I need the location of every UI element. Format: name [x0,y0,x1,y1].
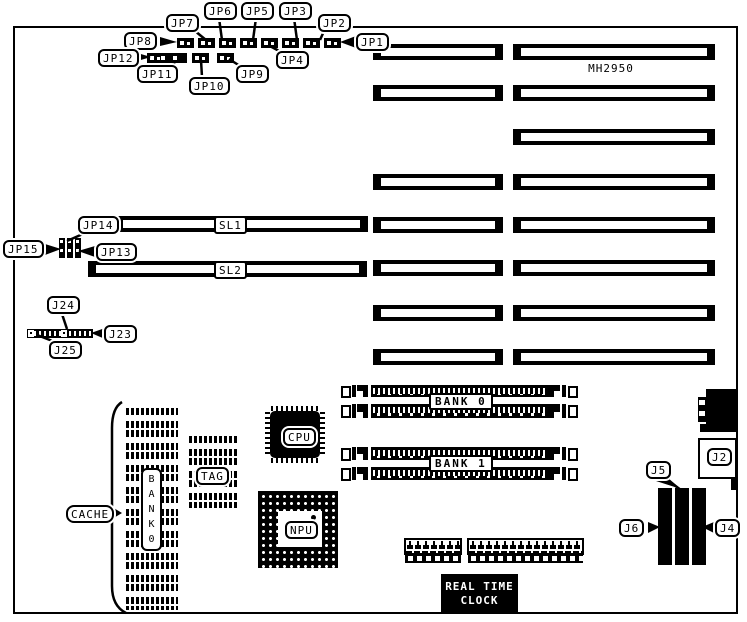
simm-latch [568,386,578,398]
expansion-slot [373,349,503,365]
jumper-block [217,53,234,63]
simm-latch [549,447,560,460]
header-connector [467,538,584,555]
jumper-label-jp6: JP6 [204,2,237,20]
jumper-label-jp14: JP14 [78,216,119,234]
simm-latch [357,385,368,397]
jumper-block [240,38,257,48]
rtc-label-line1: REAL TIME [441,580,518,594]
simm-latch [568,405,578,418]
expansion-slot [513,260,715,276]
jumper-label-jp5: JP5 [241,2,274,20]
keyboard-connector [700,424,707,432]
expansion-slot [513,349,715,365]
jumper-label-jp7: JP7 [166,14,199,32]
keyboard-connector [706,389,738,432]
pin-header-column [675,488,689,565]
jumper-label-jp15: JP15 [3,240,44,258]
expansion-slot [513,129,715,145]
pin-header-column [658,488,672,565]
connector-key-pin [28,330,34,337]
expansion-slot [513,44,715,60]
cache-label: CACHE [66,505,114,523]
board-model-text: MH2950 [583,62,639,75]
simm-latch [549,404,560,418]
cache-bank0-vertical-label: BANK0 [141,468,162,551]
slot-label-sl2: SL2 [214,261,247,279]
jumper-block [282,38,299,48]
expansion-slot [513,217,715,233]
bank0-label: BANK 0 [429,393,493,410]
jumper-block [67,238,73,258]
jumper-label-jp9: JP9 [236,65,269,83]
simm-latch [357,467,368,480]
expansion-slot [373,174,503,190]
expansion-slot [373,217,503,233]
simm-latch [341,405,351,418]
jumper-block [198,38,215,48]
keyboard-connector-notch [699,400,705,405]
connector-label-j6: J6 [619,519,644,537]
connector-label-j2: J2 [707,448,732,466]
jumper-block [192,53,209,63]
simm-latch [568,468,578,481]
simm-latch [341,468,351,481]
simm-latch [357,447,368,460]
jumper-label-jp12: JP12 [98,49,139,67]
expansion-slot [373,260,503,276]
npu-pin1-dot [311,515,316,520]
jumper-block [177,38,194,48]
header-connector [468,554,583,563]
jumper-block [324,38,341,48]
expansion-slot [513,85,715,101]
simm-latch [562,385,566,397]
rtc-label-line2: CLOCK [441,594,518,608]
npu-label: NPU [285,521,318,539]
jumper-label-jp10: JP10 [189,77,230,95]
connector-label-j5: J5 [646,461,671,479]
connector-label-j25: J25 [49,341,82,359]
connector-strip-j23 [27,329,93,338]
jumper-label-jp3: JP3 [279,2,312,20]
jumper-block [261,38,278,48]
jumper-block [59,238,65,258]
jumper-label-jp13: JP13 [96,243,137,261]
bank1-label: BANK 1 [429,455,493,472]
expansion-slot [513,305,715,321]
simm-latch [549,385,560,397]
simm-latch [568,448,578,461]
tag-chip-label: TAG [196,467,229,485]
header-connector [405,554,461,563]
real-time-clock-chip: REAL TIME CLOCK [441,574,518,614]
motherboard-diagram: MH2950 SL1 SL2 BANK0 TAG CACHE CPU NPU [0,0,747,622]
connector-label-j4: J4 [715,519,740,537]
pin-header-column [692,488,706,565]
jumper-label-jp1: JP1 [356,33,389,51]
jumper-label-jp11: JP11 [137,65,178,83]
simm-latch [341,448,351,461]
header-connector [404,538,462,555]
jumper-block [75,238,81,258]
simm-latch [341,386,351,398]
expansion-slot [373,85,503,101]
jumper-block [219,38,236,48]
simm-latch [357,404,368,418]
connector-label-j23: J23 [104,325,137,343]
expansion-slot [373,44,503,60]
simm-latch [352,404,356,418]
expansion-slot [373,305,503,321]
simm-latch [549,467,560,480]
keyboard-connector-notch [699,411,705,416]
simm-latch [352,385,356,397]
simm-latch [352,467,356,480]
jumper-label-jp4: JP4 [276,51,309,69]
jumper-label-jp2: JP2 [318,14,351,32]
connector-key-pin [61,330,67,337]
simm-latch [562,447,566,460]
connector-label-j24: J24 [47,296,80,314]
simm-latch [562,467,566,480]
jumper-label-jp8: JP8 [124,32,157,50]
jumper-block [147,53,187,63]
expansion-slot [513,174,715,190]
simm-latch [562,404,566,418]
simm-latch [352,447,356,460]
slot-label-sl1: SL1 [214,216,247,234]
cpu-label: CPU [283,428,316,446]
jumper-block [303,38,320,48]
